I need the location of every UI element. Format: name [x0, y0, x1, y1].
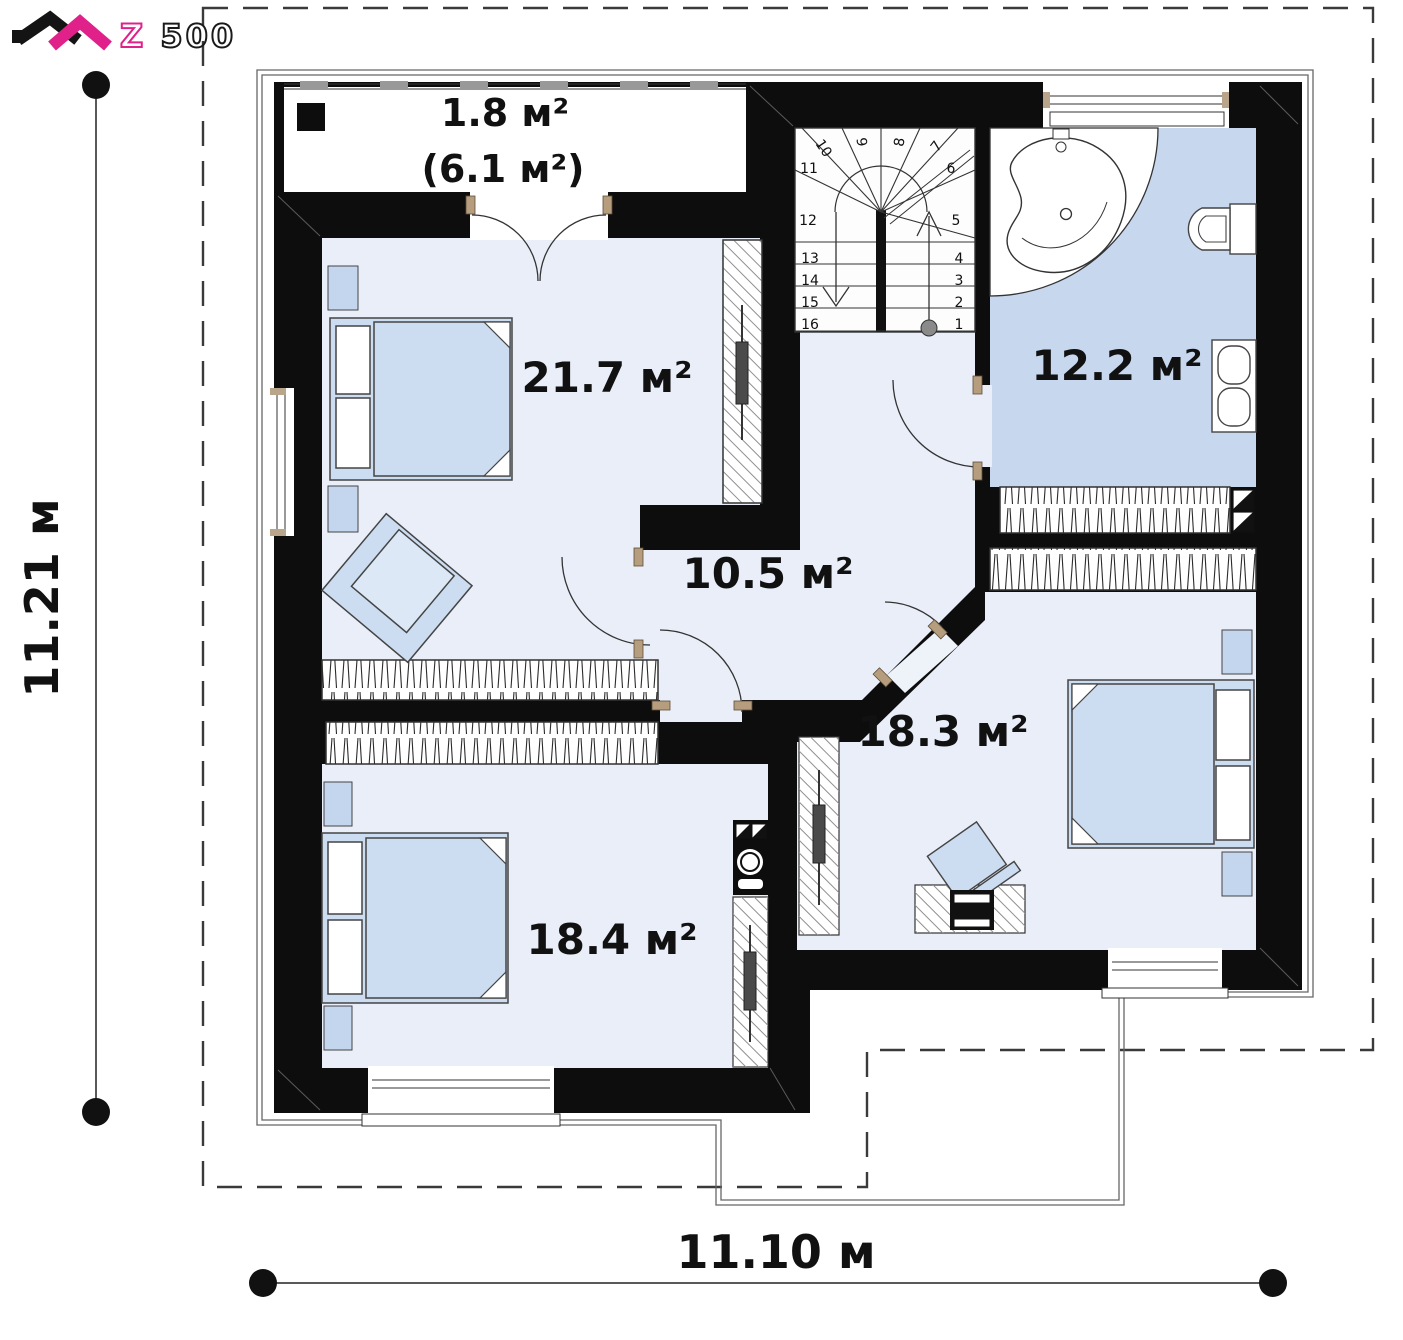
toilet-icon [1188, 204, 1256, 254]
double-bed-icon [330, 318, 512, 480]
nightstand [1222, 852, 1252, 896]
stair-step-number: 14 [801, 273, 819, 289]
tv-dresser-icon [799, 737, 839, 935]
nightstand [328, 486, 358, 532]
nightstand [328, 266, 358, 310]
double-bed-icon [1068, 680, 1254, 848]
double-sink-icon [1212, 340, 1256, 432]
window-bathroom [1043, 82, 1229, 128]
double-bed-icon [322, 833, 508, 1003]
dimension-left-label: 11.21 м [15, 498, 69, 697]
stair-step-number: 16 [801, 317, 819, 333]
room-label-bedroom-21-7: 21.7 м² [522, 353, 693, 402]
stair-step-number: 5 [952, 213, 961, 229]
floor-plan-page: 1 2 3 4 5 6 7 8 9 10 11 12 13 14 15 16 [0, 0, 1403, 1340]
nightstand [324, 1006, 352, 1050]
wardrobe-bedroom-18-4 [326, 722, 658, 764]
dimension-bottom: 11.10 м [249, 1225, 1287, 1297]
wardrobe-bathroom [1000, 487, 1230, 533]
stair-step-number: 11 [800, 161, 818, 177]
wardrobe-bedroom-21 [322, 660, 658, 700]
dresser-icon [733, 897, 768, 1067]
stair-step-number: 1 [955, 317, 964, 333]
flue-icon [733, 820, 768, 895]
dimension-left: 11.21 м [15, 71, 110, 1126]
floor-plan-drawing: 1 2 3 4 5 6 7 8 9 10 11 12 13 14 15 16 [0, 0, 1403, 1340]
chimney-block-icon [297, 103, 325, 131]
nightstand [1222, 630, 1252, 674]
logo-text-z: Z [120, 17, 146, 55]
logo-text-500: 500 [160, 17, 236, 55]
window-bedroom-18-3 [1102, 948, 1228, 998]
room-label-bedroom-18-4: 18.4 м² [527, 915, 698, 964]
room-label-hall-10-5: 10.5 м² [683, 549, 854, 598]
stair-step-number: 3 [955, 273, 964, 289]
nightstand [324, 782, 352, 826]
logo-text: Z 500 [120, 17, 236, 55]
stair-step-number: 4 [955, 251, 964, 267]
room-label-bedroom-18-3: 18.3 м² [858, 707, 1029, 756]
stair-step-number: 13 [801, 251, 819, 267]
window-bedroom-18-4 [362, 1066, 560, 1126]
room-label-bathroom-12-2: 12.2 м² [1032, 341, 1203, 390]
stair-step-number: 12 [799, 213, 817, 229]
room-label-balcony-total: (6.1 м²) [422, 147, 585, 191]
stair-step-number: 15 [801, 295, 819, 311]
stair-step-number: 2 [955, 295, 964, 311]
printer-icon [950, 890, 994, 930]
room-label-balcony-area: 1.8 м² [441, 91, 569, 135]
stair-step-number: 6 [947, 161, 956, 177]
window-left [268, 388, 294, 536]
stair-start-dot [921, 320, 937, 336]
dimension-bottom-label: 11.10 м [676, 1225, 875, 1279]
wardrobe-bedroom-18-3 [990, 548, 1256, 590]
z500-logo: Z 500 [12, 17, 236, 55]
